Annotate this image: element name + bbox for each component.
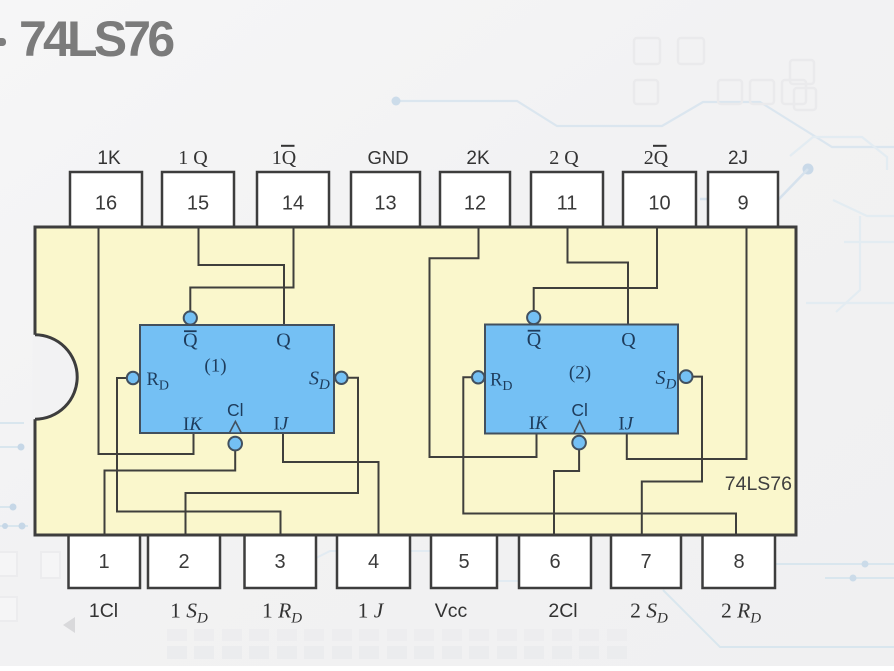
svg-text:3: 3: [274, 551, 285, 573]
svg-text:Cl: Cl: [571, 400, 588, 420]
svg-text:Q: Q: [276, 330, 291, 352]
svg-text:4: 4: [368, 551, 379, 573]
svg-text:Q: Q: [183, 330, 198, 352]
svg-text:74LS76: 74LS76: [19, 11, 173, 67]
svg-text:2: 2: [178, 551, 189, 573]
svg-text:14: 14: [282, 193, 304, 215]
svg-text:1Cl: 1Cl: [89, 600, 118, 622]
svg-text:GND: GND: [367, 147, 408, 168]
svg-text:74LS76: 74LS76: [725, 473, 792, 495]
svg-text:1 J: 1 J: [358, 599, 385, 623]
svg-text:16: 16: [95, 193, 117, 215]
svg-text:2Cl: 2Cl: [548, 600, 577, 622]
svg-text:Q: Q: [621, 329, 636, 351]
svg-text:Q: Q: [527, 329, 542, 351]
svg-text:7: 7: [640, 551, 651, 573]
svg-text:12: 12: [464, 193, 486, 215]
svg-text:IK: IK: [529, 413, 549, 434]
svg-text:Cl: Cl: [227, 400, 244, 420]
svg-text:IJ: IJ: [273, 414, 289, 435]
svg-text:2Q: 2Q: [644, 147, 669, 169]
svg-text:5: 5: [458, 551, 469, 573]
svg-text:11: 11: [557, 193, 578, 215]
svg-text:2 Q: 2 Q: [549, 147, 579, 169]
svg-text:(1): (1): [204, 356, 226, 377]
svg-text:1Q: 1Q: [272, 147, 297, 169]
svg-text:15: 15: [187, 193, 209, 215]
svg-text:1 Q: 1 Q: [178, 147, 208, 169]
svg-text:Vcc: Vcc: [435, 600, 468, 622]
svg-text:8: 8: [733, 551, 744, 573]
svg-text:13: 13: [374, 193, 396, 215]
svg-text:9: 9: [737, 193, 748, 215]
svg-text:6: 6: [549, 551, 560, 573]
svg-text:2K: 2K: [466, 148, 490, 169]
svg-text:IK: IK: [183, 414, 203, 435]
svg-text:1K: 1K: [97, 148, 121, 169]
svg-text:IJ: IJ: [618, 414, 634, 435]
svg-text:2J: 2J: [728, 148, 748, 169]
svg-text:1: 1: [98, 551, 109, 573]
svg-text:(2): (2): [569, 363, 591, 384]
svg-text:10: 10: [648, 193, 670, 215]
